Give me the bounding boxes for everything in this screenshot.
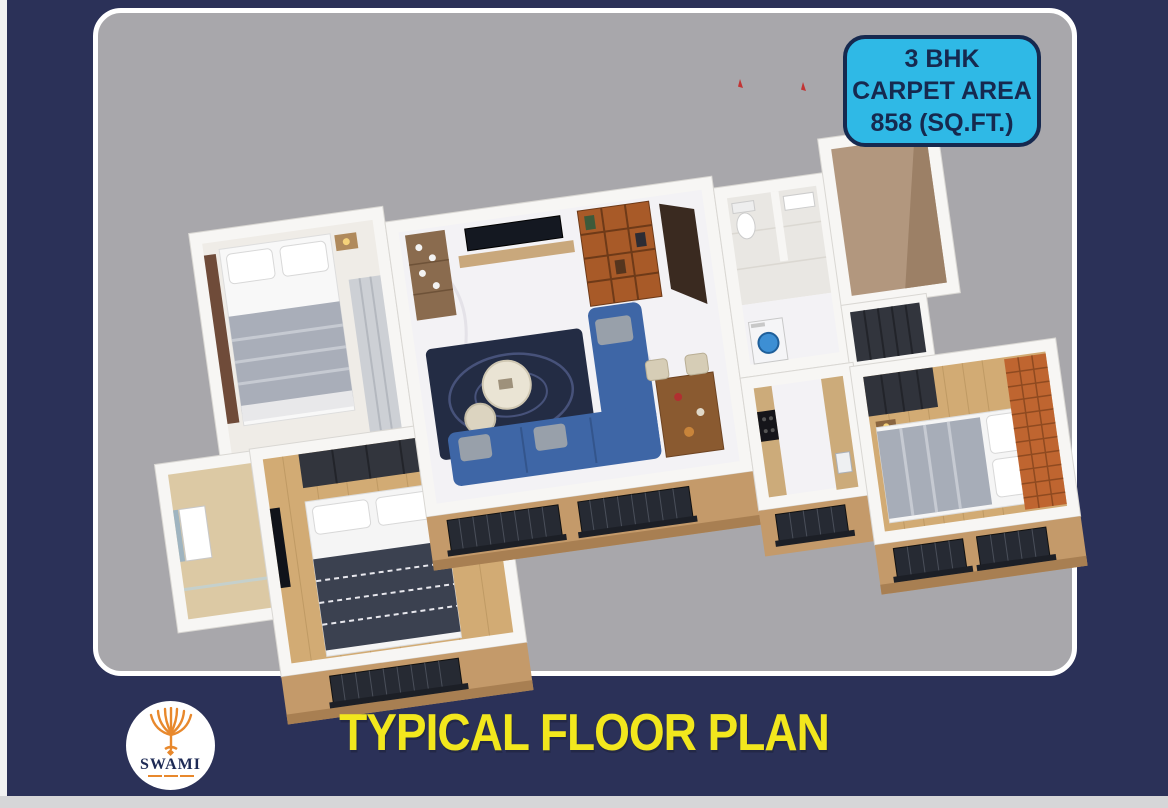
badge-line-2: CARPET AREA [852, 76, 1032, 106]
floor-plan-render [98, 153, 1082, 683]
red-artifact-2 [801, 82, 806, 91]
photo-bottom-border [0, 796, 1168, 808]
tree-icon [145, 707, 197, 753]
badge-line-1: 3 BHK [904, 44, 979, 74]
living-room [385, 176, 761, 571]
swami-logo: SWAMI [126, 701, 215, 790]
washing-machine [748, 318, 788, 364]
logo-name: SWAMI [140, 757, 201, 773]
logo-tagline [148, 775, 194, 777]
kitchen-sink [836, 452, 853, 474]
bookshelf [577, 201, 662, 306]
floor-plan-card: 3 BHK CARPET AREA 858 (SQ.FT.) [93, 8, 1077, 676]
table-decor [498, 378, 513, 390]
badge-line-3: 858 (SQ.FT.) [870, 108, 1013, 138]
photo-left-border [0, 0, 7, 808]
red-artifact-1 [738, 79, 743, 88]
bedroom-2 [850, 338, 1088, 595]
terrace-duct [818, 122, 961, 309]
carpet-area-badge: 3 BHK CARPET AREA 858 (SQ.FT.) [843, 35, 1041, 147]
bed-1 [219, 234, 355, 426]
